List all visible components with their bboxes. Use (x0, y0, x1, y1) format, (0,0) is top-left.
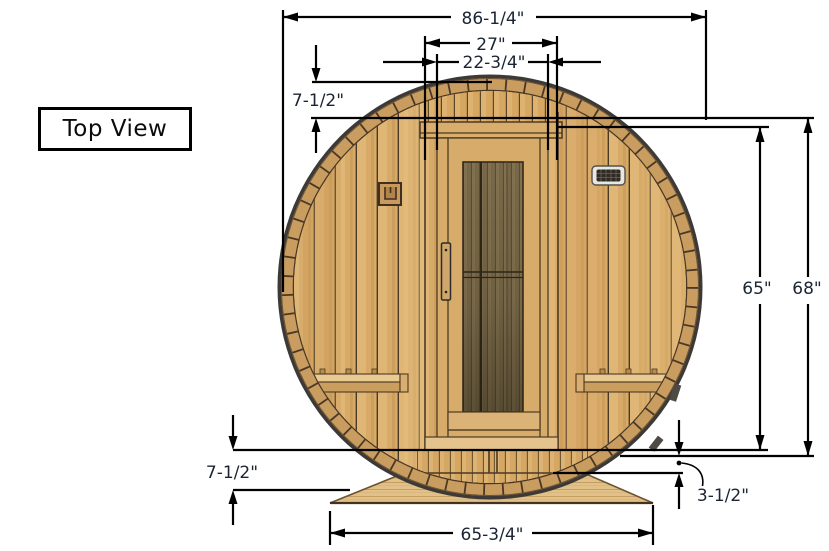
dimension-base-width: 65-3/4" (330, 525, 653, 545)
view-title: Top View (63, 116, 168, 142)
dim-base-gap-label: 3-1/2" (697, 486, 749, 506)
door-bottom-rail (448, 412, 540, 430)
dimension-body-height: 65" (742, 127, 771, 450)
technical-drawing-page: 86-1/4" 27" 22-3/4" (0, 0, 829, 551)
dimension-overall-width: 86-1/4" (283, 9, 706, 29)
dim-body-height-label: 65" (742, 279, 771, 299)
vent-grille (592, 166, 625, 185)
dim-overall-width-label: 86-1/4" (462, 9, 525, 29)
dimension-door-width: 22-3/4" (383, 52, 601, 73)
dim-total-height-label: 68" (792, 279, 821, 299)
dimension-total-height: 68" (792, 118, 821, 456)
dim-door-width-label: 22-3/4" (463, 53, 526, 73)
barrel-sauna-drawing: 86-1/4" 27" 22-3/4" (0, 0, 829, 551)
dimension-cap-height: 7-1/2" (292, 45, 344, 153)
door-header-board (420, 122, 562, 138)
view-title-box: Top View (38, 107, 192, 151)
dimension-floor-height: 7-1/2" (206, 415, 258, 525)
dim-cap-height-label: 7-1/2" (292, 91, 344, 111)
dim-base-width-label: 65-3/4" (461, 525, 524, 545)
logo-plaque (379, 183, 401, 205)
dimension-base-gap: 3-1/2" (675, 420, 750, 509)
sauna-door (437, 138, 548, 445)
dim-floor-height-label: 7-1/2" (206, 463, 258, 483)
